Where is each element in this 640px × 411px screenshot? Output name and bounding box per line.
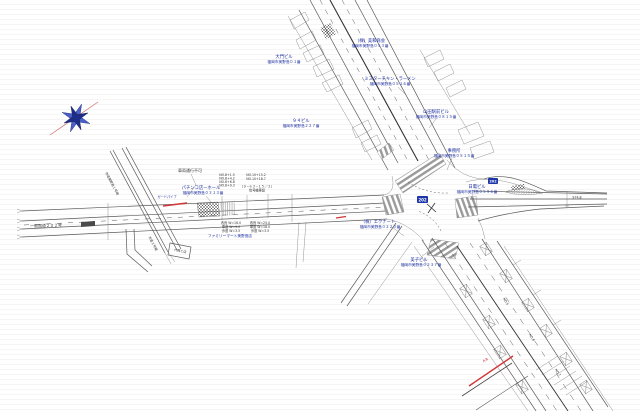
road-station: NO.5 <box>502 297 510 306</box>
road-plan-drawing: 202 202 <box>0 0 640 411</box>
shop-label: ファミリーマート美野島店 <box>208 233 253 238</box>
plan-svg: 202 202 <box>0 0 640 411</box>
building-label: ９４ビル <box>292 117 310 124</box>
building-labels: （株）美和商会 福岡市美野島０５３番 大門ビル 福岡市美野島０１番 ミスターチキ… <box>157 37 497 267</box>
route-shield-number: 202 <box>418 198 427 203</box>
building-label: 大門ビル <box>275 53 293 60</box>
ramp-boxes <box>460 242 593 394</box>
traffic-island <box>505 189 543 195</box>
building-label: ミスターチキン・ラーメン <box>364 75 415 82</box>
right-road: 202 <box>466 177 607 221</box>
width-note: 歩道 W=3.5 <box>222 228 240 233</box>
building-address: 福岡市美野島０５１６番 <box>370 81 411 86</box>
route-name: 一般国道２０２号 <box>30 221 62 228</box>
station-a: NO.8+9.3 <box>219 184 235 188</box>
survey-x-mark <box>427 203 436 213</box>
signal-note: 信号機移設 <box>249 188 266 193</box>
street-name: 市道美野島１号線 <box>104 171 121 197</box>
building-label: 美子ビル <box>410 256 428 263</box>
dim-value: 974.8 <box>572 196 581 200</box>
pavement-hatch <box>220 201 236 216</box>
hatch-sliver <box>320 23 336 39</box>
guard-pipe-label: ガードパイプ <box>157 194 177 199</box>
building-label: 日電ビル <box>468 183 486 190</box>
left-road <box>17 194 387 240</box>
crosswalk-south <box>427 239 459 259</box>
building-address: 福岡市美野島０２２３番 <box>360 224 401 229</box>
building-address: 福岡市美野島０３１３番 <box>183 190 224 195</box>
building-address: 福岡市美野島０５３番 <box>352 43 389 48</box>
road-station: NO.6 <box>528 333 536 342</box>
building-label: 山田駅前ビル <box>423 108 449 115</box>
no-entry-note: 車両通行不可 <box>178 167 202 173</box>
building-address: 福岡市美野島０１番 <box>267 59 300 64</box>
building-address: 福岡市美野島０２３７番 <box>401 262 442 267</box>
crosswalk-west <box>382 194 404 215</box>
boundary-red-line <box>469 356 513 386</box>
building-address: 福岡市美野島２２７番 <box>283 123 320 128</box>
culvert-mark <box>81 221 95 227</box>
building-label: 事務所 <box>448 147 462 154</box>
crosswalk-north <box>395 153 446 193</box>
building-label: パチンコ店ーホール <box>182 184 221 191</box>
turn-guide-lines <box>408 182 448 231</box>
side-crossing <box>377 143 394 159</box>
building-label: （株）美和商会 <box>355 37 386 44</box>
north-compass-icon <box>50 94 100 142</box>
bottom-road <box>414 238 613 411</box>
building-address: 福岡市美野島０８１５番 <box>416 114 457 119</box>
building-address: 福岡市美野島０５１５番 <box>434 153 475 158</box>
ab-mark: A.B <box>482 357 489 364</box>
building-address: 福岡市美野島０５９６番 <box>457 189 498 194</box>
street-name: 市道２号線 <box>147 235 159 252</box>
guard-pipe-red-line-2 <box>336 217 346 219</box>
width-note: 歩道 W=3.5 <box>251 228 269 233</box>
intersection: 202 <box>382 153 485 259</box>
station-b: NO.10+18.7 <box>246 177 266 181</box>
building-label: （株）エクナート <box>361 218 395 225</box>
construction-hatch <box>197 202 220 217</box>
route-shield-number-2: 202 <box>489 180 497 184</box>
